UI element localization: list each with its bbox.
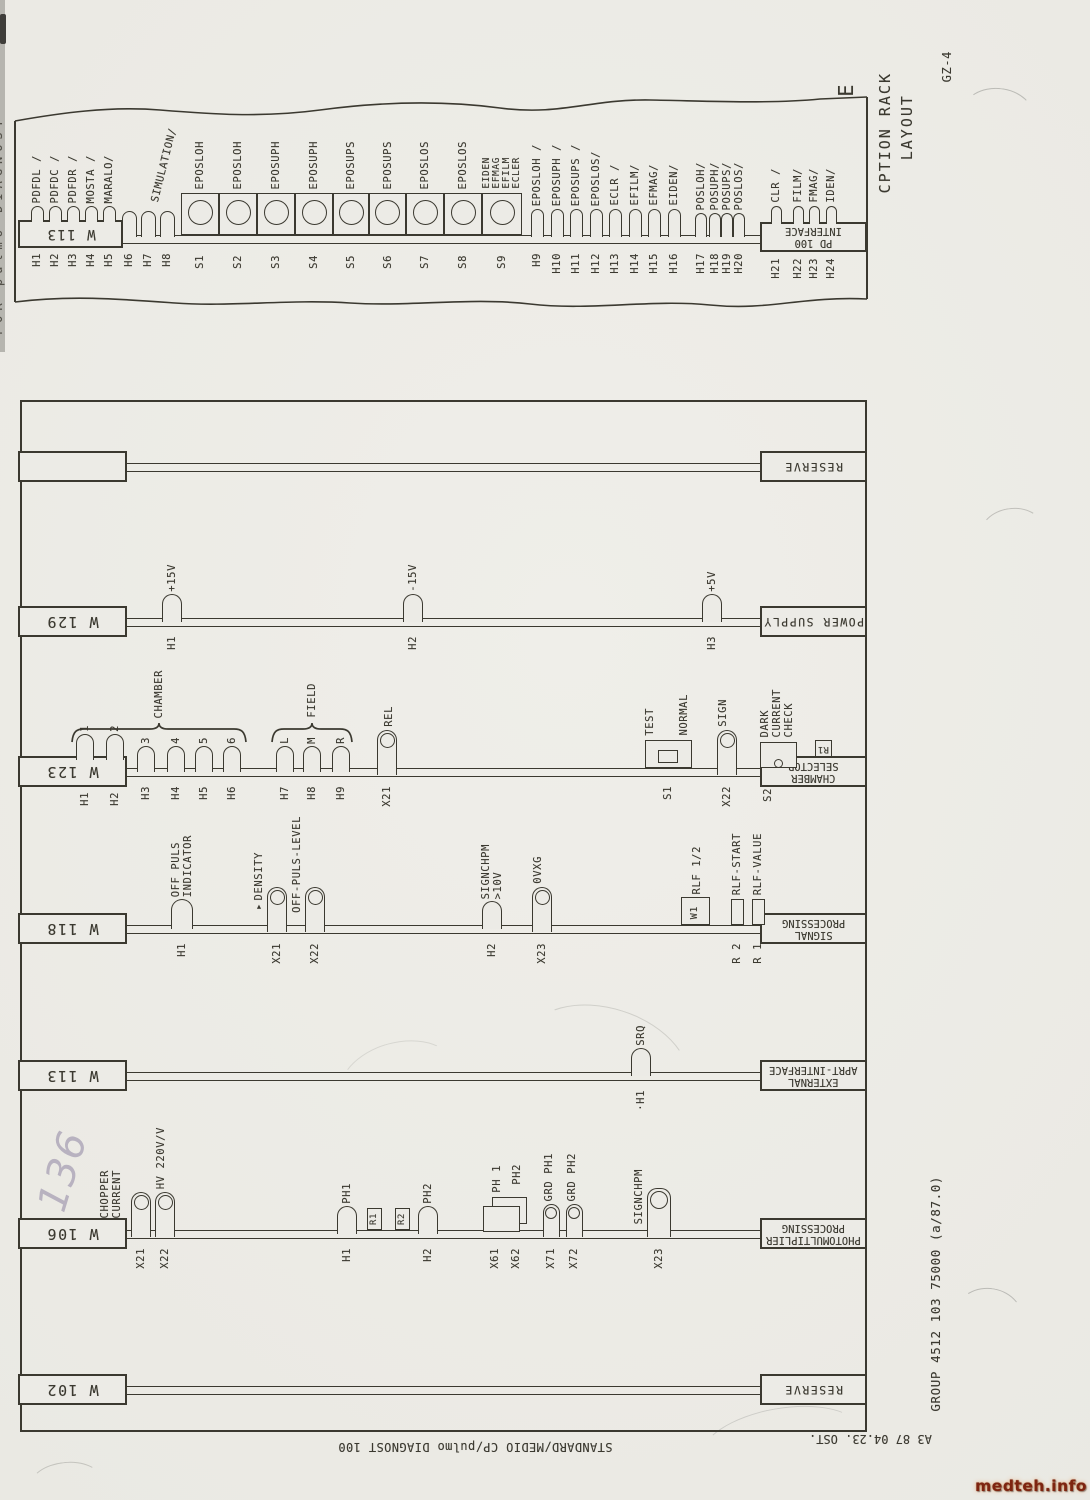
w123-lamp-H8 (303, 746, 321, 772)
w123-lamp-H4 (167, 746, 185, 772)
bus-w102 (127, 1386, 760, 1395)
strip-lamp-label-H21: CLR / (770, 168, 782, 203)
w123-switch-S1-knob (658, 750, 678, 763)
w129-lamp-label-H3: +5V (706, 571, 718, 592)
footer-sheet-id: A3 87 04.23. OST. (809, 1432, 932, 1446)
cell-label-S8: EPOSLOS (457, 141, 469, 189)
w118-rbox-ref-R 1: R 1 (752, 943, 764, 964)
w123-lamp-label-H6: 6 (226, 737, 238, 744)
w129-lamp-label-H1: +15V (166, 564, 178, 592)
w118-connector-X22-circle (308, 890, 323, 905)
w106-rect-ref-X61: X61 (489, 1248, 501, 1269)
cell-label-S2: EPOSLOH (232, 141, 244, 189)
strip-lamp-ref-H22: H22 (792, 258, 804, 279)
w118-connector-X23-circle (535, 890, 550, 905)
strip-lamp-label-H20: POSLOS/ (733, 162, 745, 210)
w106-connector-ref-X71: X71 (545, 1248, 557, 1269)
slot-w118-left-box-label: W 118 (46, 920, 99, 938)
w123-lamp-H7 (276, 746, 294, 772)
w123-lamp-ref-H3: H3 (140, 786, 152, 800)
footer-group-number: GROUP 4512 103 75000 (a/87.0) (929, 1176, 943, 1412)
strip-lamp-label-H18: POSUPH/ (709, 162, 721, 210)
w123-module-ref-S2: S2 (762, 788, 774, 802)
strip-lamp-H14 (629, 209, 642, 237)
cell-ref-S7: S7 (419, 255, 431, 269)
footer-standard-wrap: STANDARD/MEDIO CP/pulmo DIAGNOST 100 (330, 1436, 620, 1455)
strip-lamp-label-H1: PDFDL / (31, 155, 43, 203)
w106-connector-ref-X23: X23 (653, 1248, 665, 1269)
w123-lamp-label-H9: R (335, 737, 347, 744)
strip-lamp-H23 (809, 206, 820, 224)
w106-lamp-H2 (418, 1206, 438, 1234)
strip-lamp-label-H23: FMAG/ (808, 168, 820, 203)
w123-lamp-H5 (195, 746, 213, 772)
scan-artifact (977, 504, 1047, 560)
brace-label-field: FIELD (306, 683, 318, 718)
w129-lamp-ref-H2: H2 (407, 636, 419, 650)
w129-lamp-ref-H3: H3 (706, 636, 718, 650)
w123-connector-X21-circle (380, 733, 395, 748)
w123-lamp-H9 (332, 746, 350, 772)
strip-lamp-ref-H18: H18 (709, 253, 721, 274)
w106-rect-X61 (483, 1206, 520, 1232)
strip-lamp-label-H4: MOSTA / (85, 155, 97, 203)
scanned-drawing-page: FOR pulmo DIAGNOST E CPTION RACK LAYOUT … (0, 0, 1090, 1500)
strip-lamp-label-H2: PDFDC / (49, 155, 61, 203)
strip-lamp-H1 (31, 206, 44, 222)
left-edge-clipped-text: FOR pulmo DIAGNOST (0, 115, 4, 335)
slot-w106-left-box: W 106 (18, 1218, 127, 1249)
bus-w118 (127, 925, 760, 934)
w123-lamp-ref-H5: H5 (198, 786, 210, 800)
brace-label-chamber: CHAMBER (153, 670, 165, 718)
slot-w102-left-box-label: W 102 (46, 1381, 99, 1399)
slot-reserve-top-left-box (18, 451, 127, 482)
switch-cell-S6-circle (375, 200, 400, 225)
slot-w113-right-box-label: EXTERNAL APRT-INTERFACE (769, 1064, 858, 1088)
w118-rbox-R 2 (731, 899, 744, 925)
w118-lamp-H1 (171, 899, 193, 929)
w106-connector-ref-X22: X22 (159, 1248, 171, 1269)
w118-connector-X21-circle (270, 890, 285, 905)
w106-connector-label-X72: GRD PH2 (566, 1153, 578, 1201)
strip-lamp-label-H5: MARALO/ (103, 155, 115, 203)
strip-lamp-label-H19: POSUPS/ (721, 162, 733, 210)
top-strip-right-box-label: PD 100 INTERFACE (785, 225, 842, 249)
switch-cell-S8-circle (451, 200, 476, 225)
slot-w113-left-box: W 113 (18, 1060, 127, 1091)
top-strip-bus (123, 235, 760, 244)
strip-lamp-H8 (160, 211, 175, 237)
w106-connector-ref-X72: X72 (568, 1248, 580, 1269)
w123-switch-ref-S1: S1 (662, 786, 674, 800)
w106-connector-label-X23: SIGNCHPM (633, 1169, 645, 1224)
cell-ref-S2: S2 (232, 255, 244, 269)
slot-reserve-top-right-box-label: RESERVE (784, 460, 843, 474)
w118-lamp-label-H2: SIGNCHPM >10V (480, 844, 504, 899)
strip-lamp-H4 (85, 206, 98, 222)
w106-lamp-ref-H1: H1 (341, 1248, 353, 1262)
strip-lamp-H19 (721, 213, 733, 237)
watermark: medteh.info (975, 1477, 1087, 1495)
w129-lamp-H1 (162, 594, 182, 622)
strip-lamp-ref-H17: H17 (695, 253, 707, 274)
strip-lamp-ref-H13: H13 (609, 253, 621, 274)
strip-lamp-label-H13: ECLR / (609, 164, 621, 206)
w106-connector-ref-X21: X21 (135, 1248, 147, 1269)
w106-connector-X71-circle (545, 1207, 557, 1219)
cell-label-S1: EPOSLOH (194, 141, 206, 189)
slot-w113-right-box: EXTERNAL APRT-INTERFACE (760, 1060, 867, 1091)
w118-rbox-R 1 (752, 899, 765, 925)
w106-connector-X22-circle (158, 1195, 173, 1210)
w106-connector-X21-circle (134, 1195, 149, 1210)
strip-lamp-H24 (826, 206, 837, 224)
w123-lamp-label-H7: L (279, 737, 291, 744)
w123-lamp-label-H1: 1 (79, 725, 91, 732)
w106-connector-label-X71: GRD PH1 (543, 1153, 555, 1201)
strip-lamp-label-H22: FILM/ (792, 168, 804, 203)
strip-lamp-ref-H3: H3 (67, 253, 79, 267)
sheet-code: GZ-4 (941, 51, 953, 82)
w118-rbox-label-R 2: RLF-START (731, 833, 743, 895)
cell-label-S9: EIDEN EFMAG EFILM ECLER (482, 157, 522, 189)
w123-lamp-ref-H2: H2 (109, 792, 121, 806)
strip-lamp-ref-H20: H20 (733, 253, 745, 274)
w129-lamp-ref-H1: H1 (166, 636, 178, 650)
cell-ref-S9: S9 (496, 255, 508, 269)
w118-connector-label-X22: OFF-PULS-LEVEL (291, 816, 303, 913)
w129-lamp-H2 (403, 594, 423, 622)
w118-lamp-label-H1: OFF PULS INDICATOR (170, 835, 194, 897)
slot-w129-left-box: W 129 (18, 606, 127, 637)
strip-lamp-label-H10: EPOSUPH / (551, 144, 563, 206)
w123-rbox-R1: R1 (815, 740, 832, 757)
switch-cell-S5-circle (339, 200, 364, 225)
bus-reserve-top (127, 463, 760, 472)
strip-lamp-H17 (695, 213, 707, 237)
slot-w118-left-box: W 118 (18, 913, 127, 944)
strip-lamp-ref-H24: H24 (825, 258, 837, 279)
strip-lamp-H6 (122, 211, 137, 237)
cell-ref-S1: S1 (194, 255, 206, 269)
top-strip-right-box: PD 100 INTERFACE (760, 222, 867, 252)
strip-lamp-H18 (709, 213, 721, 237)
strip-lamp-ref-H5: H5 (103, 253, 115, 267)
slot-w129-right-box-label: POWER SUPPLY (763, 615, 864, 629)
cell-label-S6: EPOSUPS (382, 141, 394, 189)
slot-w129-left-box-label: W 129 (46, 613, 99, 631)
w129-lamp-label-H2: -15V (407, 564, 419, 592)
strip-lamp-ref-H6: H6 (123, 253, 135, 267)
strip-lamp-label-H14: EFILM/ (629, 164, 641, 206)
w106-rbox-R1-label: R1 (368, 1213, 380, 1225)
slot-w106-right-box-label: PHOTOMULTIPLIER PROCESSING (766, 1222, 861, 1246)
slot-w106-right-box: PHOTOMULTIPLIER PROCESSING (760, 1218, 867, 1249)
w118-connector-ref-X21: X21 (271, 943, 283, 964)
slot-w102-right-box: RESERVE (760, 1374, 867, 1405)
strip-lamp-ref-H16: H16 (668, 253, 680, 274)
cell-ref-S4: S4 (308, 255, 320, 269)
w123-switch-label-TEST: TEST (644, 708, 656, 736)
strip-lamp-H5 (103, 206, 116, 222)
slot-w118-right-box: SIGNAL PROCESSING (760, 913, 867, 944)
strip-lamp-H9 (531, 209, 544, 237)
bus-w123 (127, 768, 760, 777)
strip-lamp-ref-H14: H14 (629, 253, 641, 274)
w123-connector-X22-circle (720, 733, 735, 748)
w123-lamp-ref-H1: H1 (79, 792, 91, 806)
strip-lamp-ref-H9: H9 (531, 253, 543, 267)
w123-connector-ref-X21: X21 (381, 786, 393, 807)
top-strip-left-box-label: W 113 (46, 226, 96, 242)
strip-lamp-ref-H8: H8 (161, 253, 173, 267)
w123-lamp-H2 (106, 734, 124, 760)
strip-lamp-ref-H10: H10 (551, 253, 563, 274)
cell-label-S3: EPOSUPH (270, 141, 282, 189)
strip-lamp-H20 (733, 213, 745, 237)
w123-module-S2-bump (774, 759, 783, 768)
w118-lamp-ref-H2: H2 (486, 943, 498, 957)
w123-lamp-label-H8: M (306, 737, 318, 744)
w123-rbox-R1-label: R1 (818, 744, 829, 754)
strip-lamp-label-H11: EPOSUPS / (570, 144, 582, 206)
strip-lamp-ref-H12: H12 (590, 253, 602, 274)
w123-lamp-label-H4: 4 (170, 737, 182, 744)
slot-w102-left-box: W 102 (18, 1374, 127, 1405)
strip-lamp-H13 (609, 209, 622, 237)
strip-lamp-label-H15: EFMAG/ (648, 164, 660, 206)
strip-lamp-H21 (771, 206, 782, 224)
w106-rect-label-X62: PH2 (511, 1164, 523, 1185)
w106-rect-ref-X62: X62 (510, 1248, 522, 1269)
w106-connector-label-X21: CHOPPER CURRENT (99, 1170, 123, 1218)
strip-lamp-label-H17: POSLOH/ (695, 162, 707, 210)
cell-ref-S6: S6 (382, 255, 394, 269)
switch-cell-S4-circle (302, 200, 327, 225)
strip-lamp-ref-H1: H1 (31, 253, 43, 267)
switch-cell-S3-circle (264, 200, 289, 225)
cell-ref-S8: S8 (457, 255, 469, 269)
strip-lamp-H16 (668, 209, 681, 237)
w106-rect-label-X61: PH 1 (491, 1165, 503, 1193)
strip-lamp-label-H3: PDFDR / (67, 155, 79, 203)
cell-ref-S5: S5 (345, 255, 357, 269)
sheet-letter: E (835, 84, 857, 97)
bus-w129 (127, 618, 760, 627)
cell-ref-S3: S3 (270, 255, 282, 269)
strip-lamp-label-H24: IDEN/ (825, 168, 837, 203)
strip-lamp-label-H9: EPOSLOH / (531, 144, 543, 206)
top-strip-left-box: W 113 (18, 220, 123, 248)
w123-lamp-ref-H4: H4 (170, 786, 182, 800)
w123-module-label-S2: DARK CURRENT CHECK (759, 689, 795, 737)
switch-cell-S9-circle (490, 200, 515, 225)
strip-lamp-H12 (590, 209, 603, 237)
footer-standard-text: STANDARD/MEDIO CP/pulmo DIAGNOST 100 (338, 1440, 613, 1454)
strip-lamp-label-H12: EPOSLOS/ (590, 151, 602, 206)
strip-lamp-ref-H2: H2 (49, 253, 61, 267)
w106-connector-X72-circle (568, 1207, 580, 1219)
w118-connector-ref-X23: X23 (536, 943, 548, 964)
drawing-title: CPTION RACK LAYOUT (874, 72, 918, 193)
w106-lamp-ref-H2: H2 (422, 1248, 434, 1262)
slot-reserve-top-right-box: RESERVE (760, 451, 867, 482)
w123-lamp-H1 (76, 734, 94, 760)
bus-w113 (127, 1072, 760, 1081)
w123-lamp-ref-H9: H9 (335, 786, 347, 800)
w118-rbox-label-R 1: RLF-VALUE (752, 833, 764, 895)
w123-lamp-H3 (137, 746, 155, 772)
slot-w123-left-box: W 123 (18, 756, 127, 787)
strip-lamp-ref-H21: H21 (770, 258, 782, 279)
slot-w123-left-box-label: W 123 (46, 763, 99, 781)
w123-lamp-ref-H6: H6 (226, 786, 238, 800)
w118-lamp-ref-H1: H1 (176, 943, 188, 957)
w106-lamp-label-H1: PH1 (341, 1183, 353, 1204)
w123-connector-ref-X22: X22 (721, 786, 733, 807)
strip-lamp-ref-H4: H4 (85, 253, 97, 267)
slot-w113-left-box-label: W 113 (46, 1067, 99, 1085)
strip-lamp-H22 (793, 206, 804, 224)
w118-wbox-W1-text: W1 (689, 906, 701, 919)
w123-switch-label-NORMAL: NORMAL (678, 694, 690, 736)
strip-lamp-ref-H19: H19 (721, 253, 733, 274)
w118-rbox-ref-R 2: R 2 (731, 943, 743, 964)
w118-lamp-H2 (482, 901, 502, 929)
w123-lamp-label-H3: 3 (140, 737, 152, 744)
w118-connector-ref-X22: X22 (309, 943, 321, 964)
strip-lamp-H7 (141, 211, 156, 237)
cell-label-S7: EPOSLOS (419, 141, 431, 189)
slot-w118-right-box-label: SIGNAL PROCESSING (782, 917, 845, 941)
w123-lamp-H6 (223, 746, 241, 772)
w113-lamp-·H1 (631, 1048, 651, 1076)
w123-lamp-ref-H7: H7 (279, 786, 291, 800)
slot-w106-left-box-label: W 106 (46, 1225, 99, 1243)
w123-lamp-label-H2: 2 (109, 725, 121, 732)
w118-wbox-label-W1: RLF 1/2 (691, 846, 703, 894)
switch-cell-S7-circle (413, 200, 438, 225)
w106-connector-label-X22: HV 220V/V (155, 1127, 167, 1189)
w106-rbox-R2-label: R2 (396, 1213, 408, 1225)
strip-lamp-H11 (570, 209, 583, 237)
w123-connector-label-X22: SIGN (717, 699, 729, 727)
strip-lamp-label-H16: EIDEN/ (668, 164, 680, 206)
strip-lamp-ref-H11: H11 (570, 253, 582, 274)
scan-artifact (28, 1458, 104, 1500)
w118-connector-label-X21: ▾DENSITY (253, 852, 265, 913)
strip-lamp-H15 (648, 209, 661, 237)
switch-cell-S1-circle (188, 200, 213, 225)
w106-lamp-H1 (337, 1206, 357, 1234)
w129-lamp-H3 (702, 594, 722, 622)
strip-lamp-H3 (67, 206, 80, 222)
strip-lamp-ref-H7: H7 (142, 253, 154, 267)
strip-lamp-ref-H23: H23 (808, 258, 820, 279)
strip-lamp-ref-H15: H15 (648, 253, 660, 274)
strip-lamp-H10 (551, 209, 564, 237)
cell-label-S4: EPOSUPH (308, 141, 320, 189)
w106-lamp-label-H2: PH2 (422, 1183, 434, 1204)
footer-sheet-wrap: A3 87 04.23. OST. (808, 1428, 933, 1447)
cell-label-S5: EPOSUPS (345, 141, 357, 189)
brace-chamber (72, 722, 246, 744)
slot-w102-right-box-label: RESERVE (784, 1383, 843, 1397)
w123-connector-label-X21: REL (383, 706, 395, 727)
w113-lamp-ref-·H1: ·H1 (635, 1090, 647, 1111)
w118-connector-label-X23: 0VXG (532, 856, 544, 884)
w113-lamp-label-·H1: SRQ (635, 1025, 647, 1046)
slot-w129-right-box: POWER SUPPLY (760, 606, 867, 637)
w123-lamp-label-H5: 5 (198, 737, 210, 744)
strip-lamp-H2 (49, 206, 62, 222)
w106-connector-X23-circle (650, 1191, 668, 1209)
switch-cell-S2-circle (226, 200, 251, 225)
w123-lamp-ref-H8: H8 (306, 786, 318, 800)
scan-artifact (950, 1283, 1027, 1352)
